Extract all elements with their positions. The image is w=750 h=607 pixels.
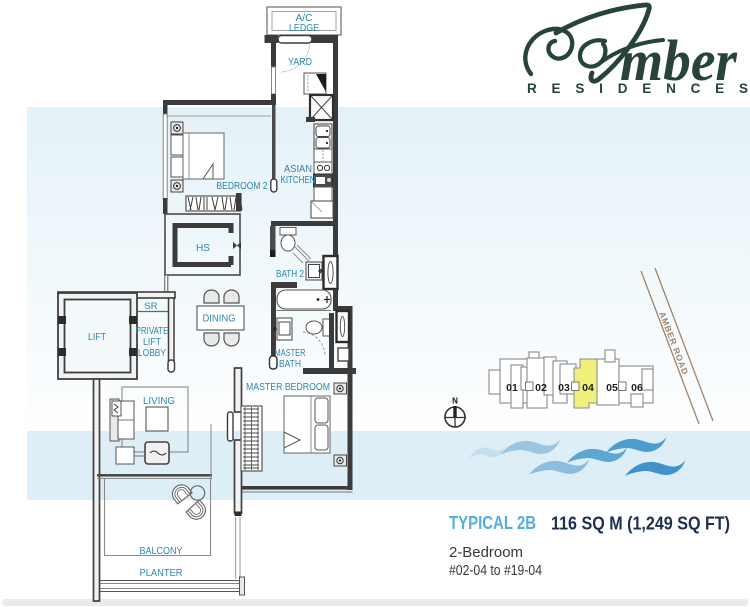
svg-text:TYPICAL 2B: TYPICAL 2B	[449, 513, 536, 533]
svg-text:KITCHEN: KITCHEN	[281, 175, 316, 186]
svg-text:01: 01	[506, 382, 518, 394]
svg-text:PLANTER: PLANTER	[140, 568, 183, 579]
svg-text:LOBBY: LOBBY	[138, 348, 166, 359]
svg-text:LIVING: LIVING	[143, 396, 175, 407]
svg-text:02: 02	[535, 382, 547, 394]
svg-text:SR: SR	[145, 301, 158, 312]
svg-text:05: 05	[606, 382, 618, 394]
svg-text:PRIVATE: PRIVATE	[136, 326, 169, 337]
svg-text:BALCONY: BALCONY	[140, 546, 183, 557]
svg-text:ASIAN: ASIAN	[284, 164, 312, 175]
svg-text:BATH: BATH	[279, 359, 301, 370]
svg-text:BEDROOM 2: BEDROOM 2	[217, 181, 268, 192]
svg-text:BATH 2: BATH 2	[276, 269, 304, 280]
svg-text:LEDGE: LEDGE	[289, 23, 319, 34]
svg-text:HS: HS	[196, 243, 210, 254]
svg-text:2-Bedroom: 2-Bedroom	[449, 545, 523, 561]
svg-text:MASTER BEDROOM: MASTER BEDROOM	[246, 382, 330, 393]
svg-text:#02-04 to #19-04: #02-04 to #19-04	[449, 563, 542, 579]
svg-text:YARD: YARD	[288, 57, 312, 68]
svg-text:LIFT: LIFT	[88, 332, 106, 343]
svg-text:03: 03	[558, 382, 570, 394]
svg-text:116 SQ M (1,249 SQ FT): 116 SQ M (1,249 SQ FT)	[551, 513, 730, 534]
svg-text:LIFT: LIFT	[143, 337, 161, 348]
svg-text:04: 04	[582, 382, 594, 394]
svg-text:MASTER: MASTER	[275, 348, 306, 359]
svg-text:DINING: DINING	[203, 314, 236, 325]
svg-text:06: 06	[631, 382, 643, 394]
svg-text:N: N	[452, 397, 458, 406]
